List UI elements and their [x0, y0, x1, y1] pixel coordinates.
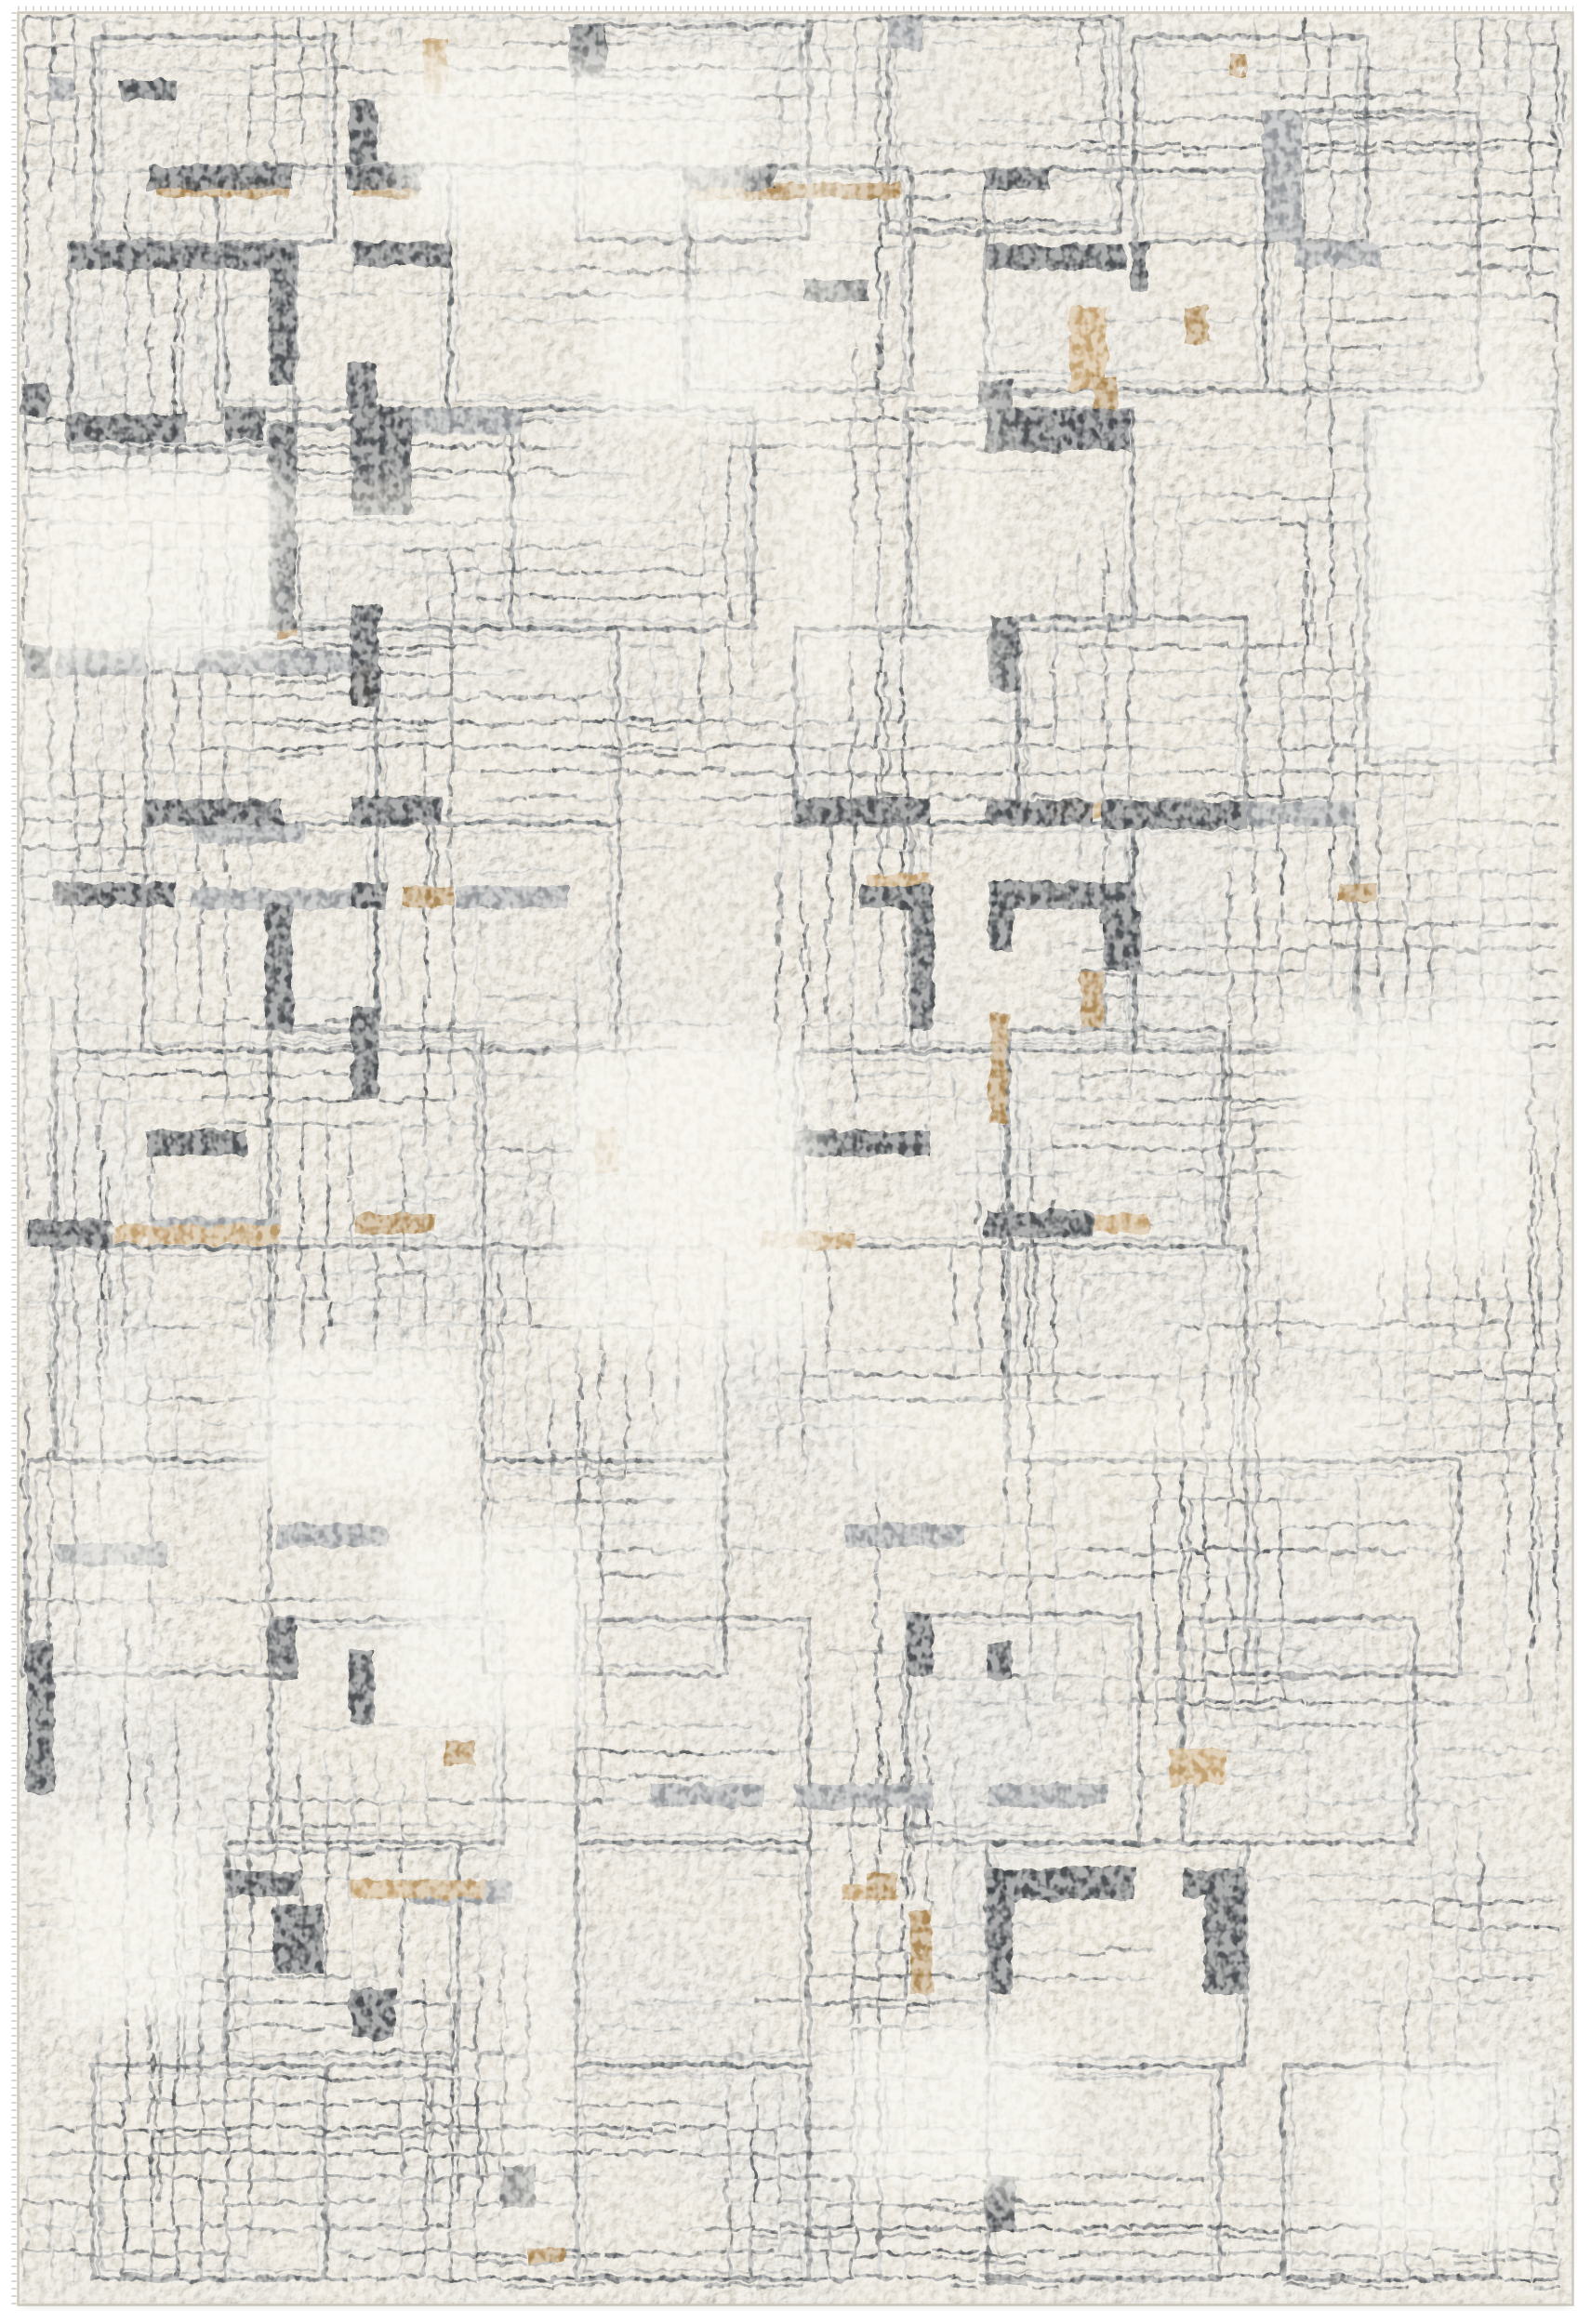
rug-render [0, 0, 1591, 2324]
rug-product-photo [0, 0, 1591, 2324]
bottom-shadow [23, 2304, 1568, 2308]
right-shadow [1571, 49, 1575, 2268]
pile-flecks [18, 12, 1573, 2305]
